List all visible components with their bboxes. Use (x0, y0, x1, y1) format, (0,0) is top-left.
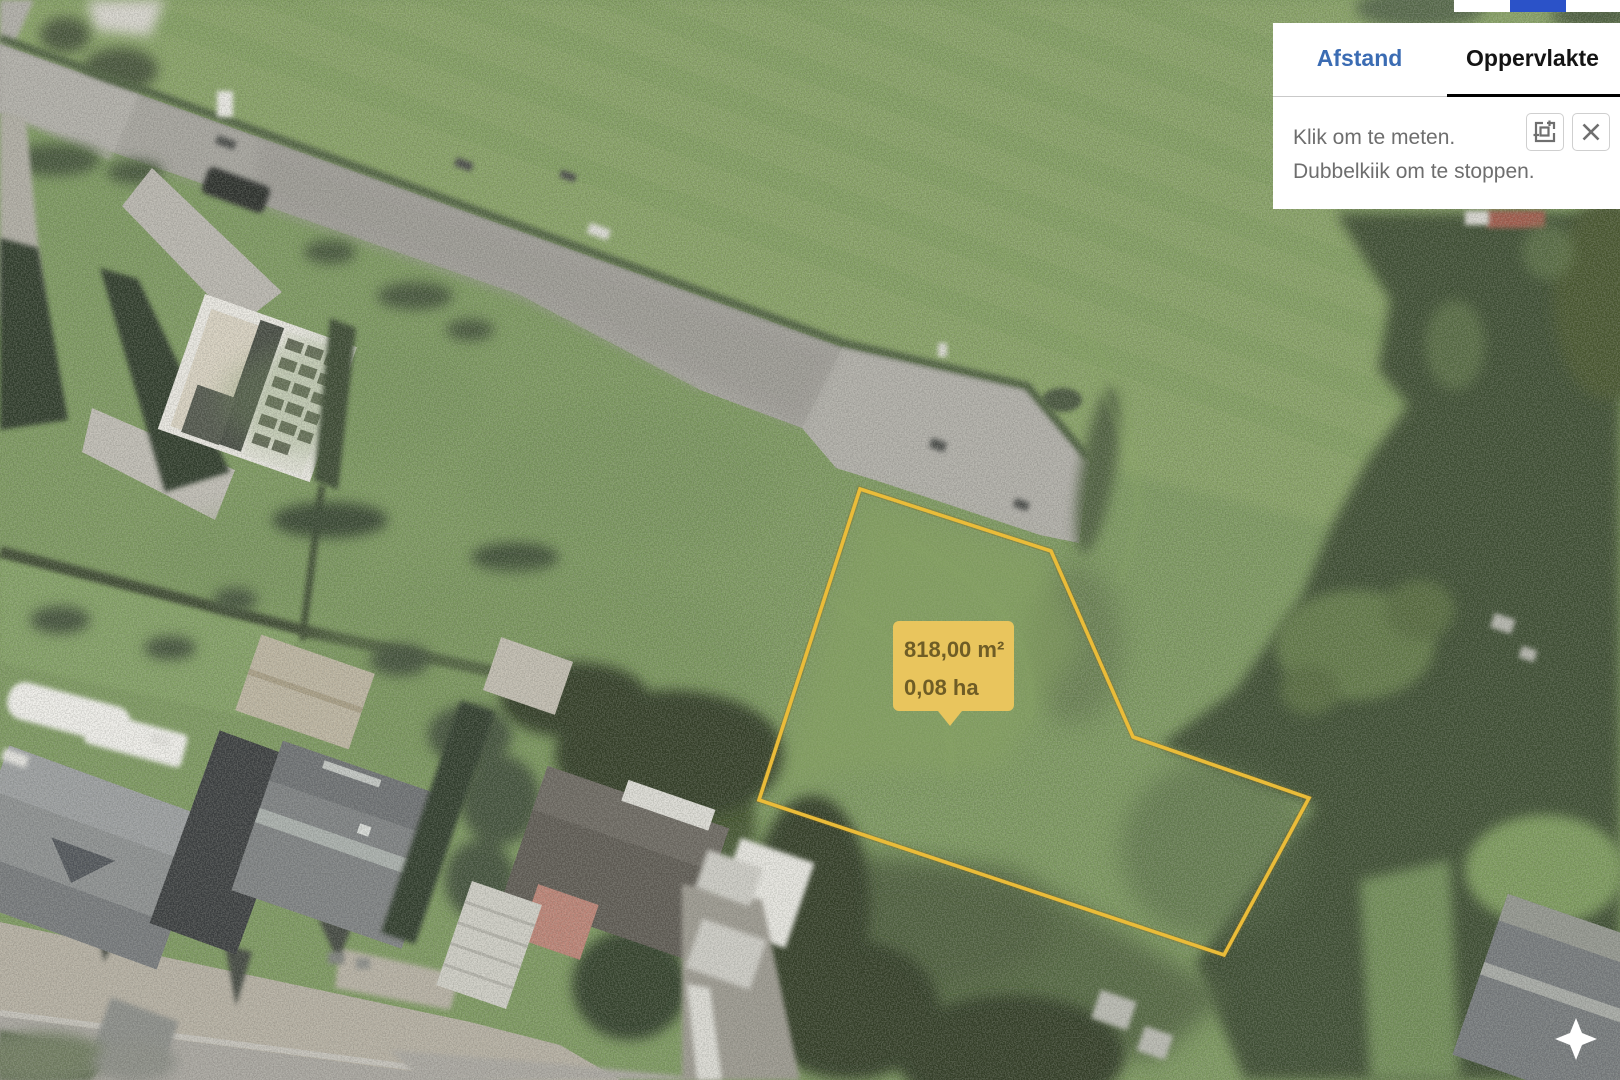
svg-text:818,00 m²: 818,00 m² (904, 637, 1004, 662)
svg-text:0,08 ha: 0,08 ha (904, 675, 979, 700)
